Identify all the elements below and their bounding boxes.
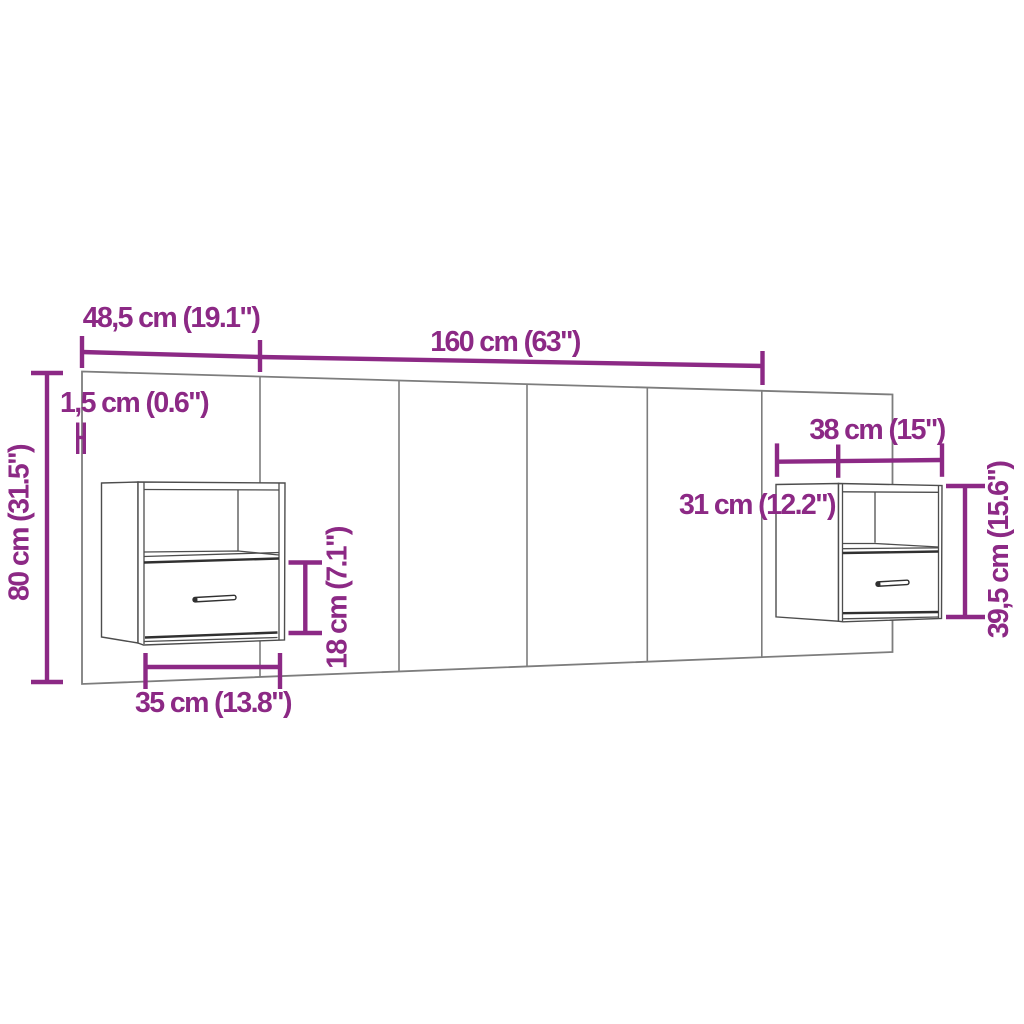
svg-text:31 cm (12.2"): 31 cm (12.2") bbox=[679, 489, 836, 521]
svg-text:160 cm (63"): 160 cm (63") bbox=[430, 326, 581, 358]
svg-text:18 cm (7.1"): 18 cm (7.1") bbox=[322, 526, 354, 669]
svg-text:48,5 cm (19.1"): 48,5 cm (19.1") bbox=[83, 302, 261, 334]
svg-text:35 cm (13.8"): 35 cm (13.8") bbox=[135, 687, 292, 719]
svg-text:1,5 cm (0.6"): 1,5 cm (0.6") bbox=[60, 387, 209, 419]
svg-text:80 cm (31.5"): 80 cm (31.5") bbox=[4, 444, 36, 601]
svg-text:38 cm (15"): 38 cm (15") bbox=[809, 414, 945, 446]
svg-text:39,5 cm (15.6"): 39,5 cm (15.6") bbox=[983, 461, 1015, 639]
